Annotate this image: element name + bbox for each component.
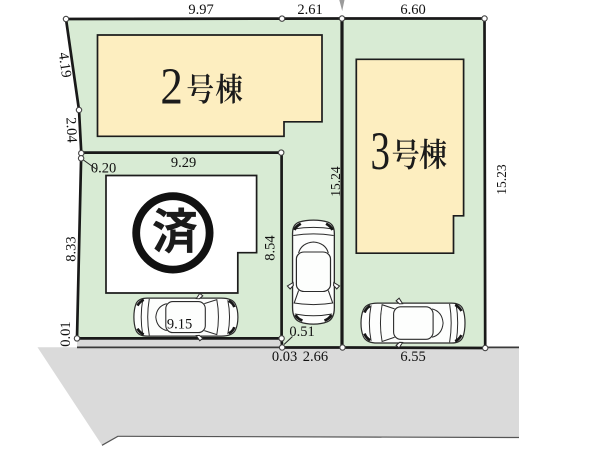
svg-text:6.60: 6.60 (400, 2, 425, 18)
svg-text:2.66: 2.66 (303, 349, 328, 365)
svg-text:8.33: 8.33 (64, 236, 80, 261)
svg-text:9.29: 9.29 (171, 155, 196, 171)
svg-text:0.01: 0.01 (58, 321, 74, 346)
svg-text:9.15: 9.15 (167, 317, 192, 333)
svg-text:0.03: 0.03 (272, 349, 297, 365)
svg-text:0.20: 0.20 (91, 161, 116, 177)
svg-text:6.55: 6.55 (400, 349, 425, 365)
svg-text:4.19: 4.19 (55, 51, 74, 78)
svg-text:0.51: 0.51 (289, 324, 314, 340)
svg-text:3: 3 (370, 121, 390, 181)
svg-text:15.23: 15.23 (494, 164, 509, 195)
svg-text:2.61: 2.61 (297, 2, 322, 18)
svg-text:2: 2 (160, 58, 183, 115)
svg-text:9.97: 9.97 (188, 2, 213, 18)
svg-text:8.54: 8.54 (263, 235, 279, 261)
svg-text:15.24: 15.24 (328, 166, 343, 197)
svg-text:2.04: 2.04 (62, 117, 79, 144)
